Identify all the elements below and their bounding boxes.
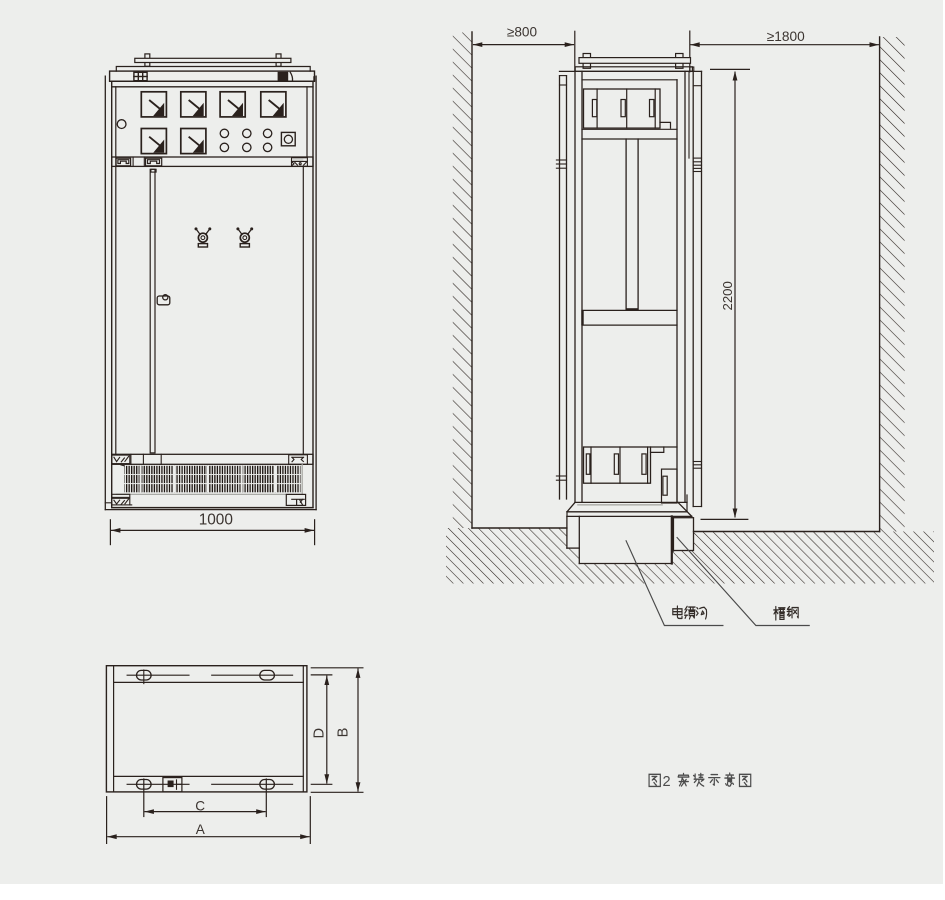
svg-text:1000: 1000: [199, 511, 233, 528]
svg-text:B: B: [335, 728, 351, 738]
svg-text:C: C: [195, 798, 205, 813]
svg-text:2200: 2200: [720, 281, 735, 310]
svg-text:D: D: [311, 728, 327, 739]
svg-text:2: 2: [663, 774, 671, 790]
svg-text:≥1800: ≥1800: [767, 29, 805, 44]
svg-text:≥800: ≥800: [507, 25, 538, 40]
svg-text:A: A: [196, 822, 206, 837]
